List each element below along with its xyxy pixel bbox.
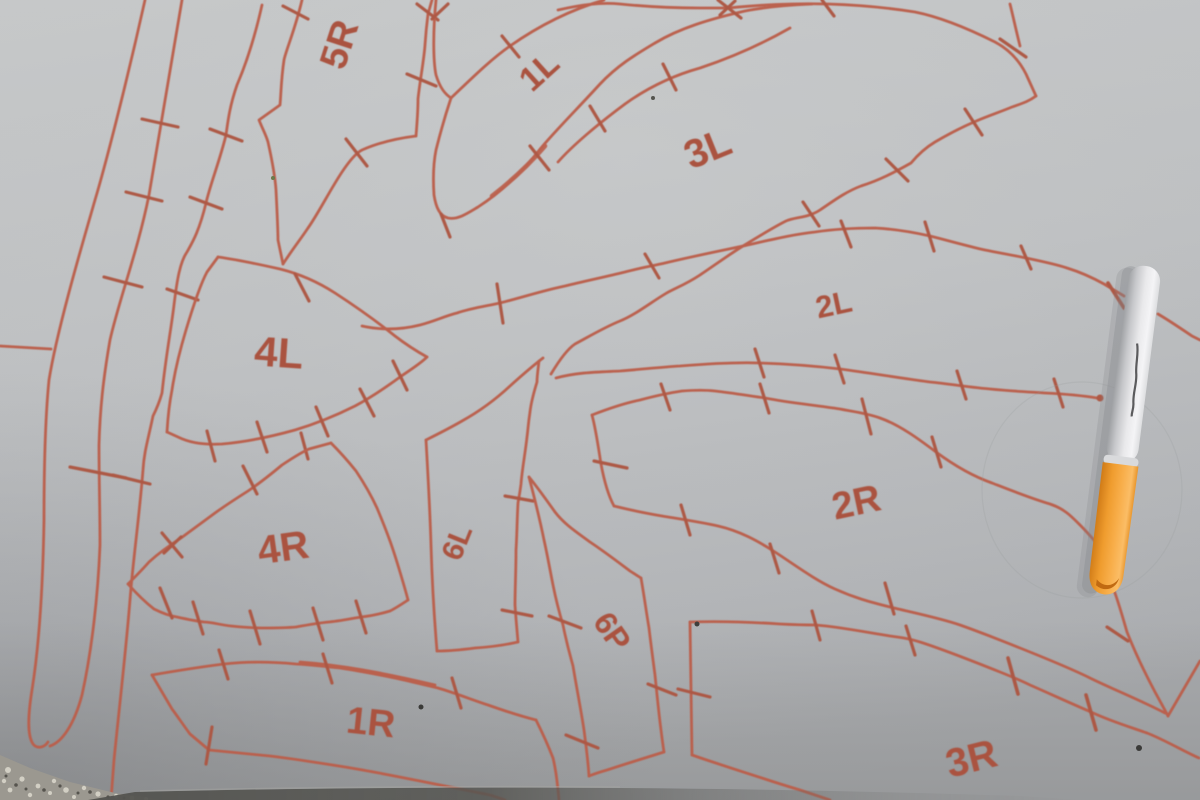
svg-text:1R: 1R xyxy=(344,700,397,747)
svg-text:4R: 4R xyxy=(255,523,312,574)
svg-text:4L: 4L xyxy=(253,327,305,377)
svg-text:2L: 2L xyxy=(812,284,855,326)
